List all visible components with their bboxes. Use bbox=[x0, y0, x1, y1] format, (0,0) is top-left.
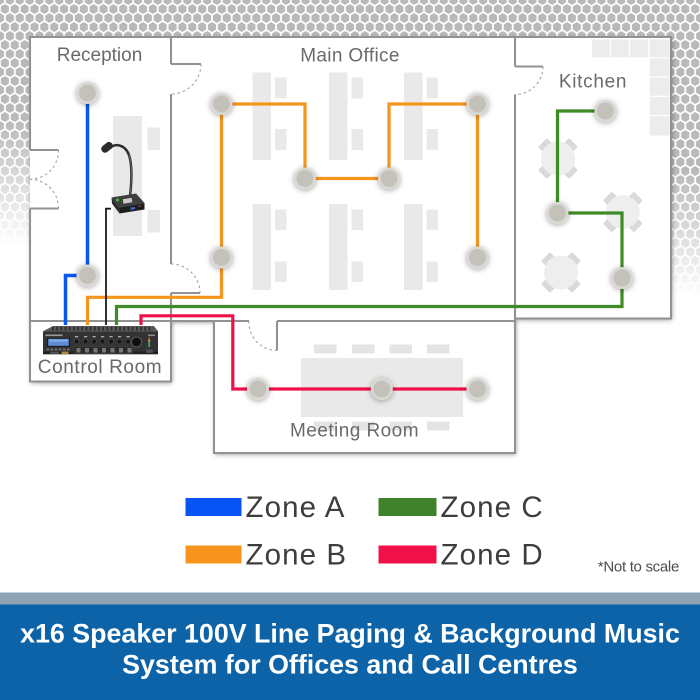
svg-text:Zone D: Zone D bbox=[441, 539, 544, 572]
svg-text:Control Room: Control Room bbox=[38, 357, 162, 378]
svg-text:Zone A: Zone A bbox=[246, 491, 346, 524]
svg-text:Reception: Reception bbox=[57, 45, 143, 66]
svg-text:Zone C: Zone C bbox=[441, 491, 544, 524]
svg-text:Meeting Room: Meeting Room bbox=[290, 421, 419, 442]
svg-text:Main Office: Main Office bbox=[300, 46, 400, 67]
svg-text:x16 Speaker 100V Line Paging &: x16 Speaker 100V Line Paging & Backgroun… bbox=[20, 619, 680, 649]
svg-text:Kitchen: Kitchen bbox=[559, 72, 627, 93]
svg-text:Zone B: Zone B bbox=[246, 539, 348, 572]
svg-text:*Not to scale: *Not to scale bbox=[598, 559, 679, 576]
svg-text:System for Offices and Call Ce: System for Offices and Call Centres bbox=[122, 650, 578, 680]
